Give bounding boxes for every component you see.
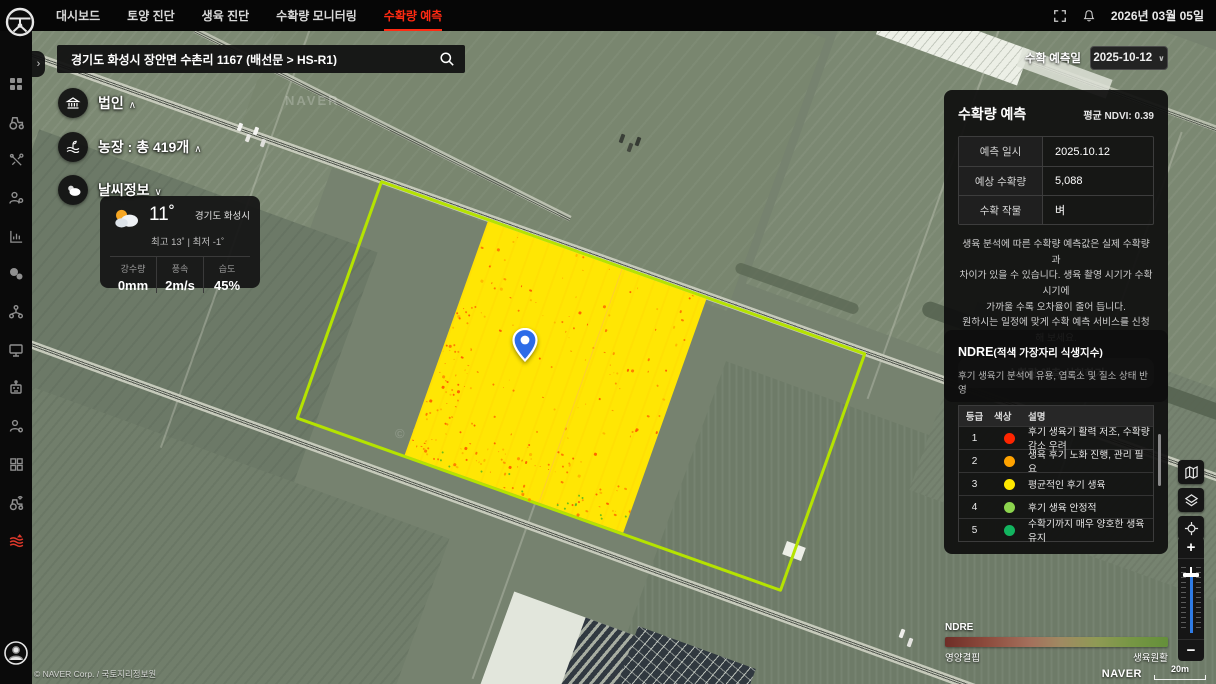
chevron-down-icon: ∨ <box>1158 54 1165 63</box>
panel-collapse-handle[interactable]: › <box>32 51 45 77</box>
ndvi-speckle <box>429 412 431 414</box>
sun-cloud-icon <box>110 205 142 236</box>
gradient-bar <box>945 637 1168 647</box>
ndvi-speckle <box>553 321 556 324</box>
zoom-out-button[interactable]: − <box>1178 639 1204 661</box>
ndvi-speckle <box>416 445 418 447</box>
sidebar-analytics-icon[interactable] <box>0 217 32 255</box>
ndvi-speckle <box>460 356 463 359</box>
ndvi-speckle <box>599 488 602 491</box>
ndvi-speckle <box>511 434 512 435</box>
ndvi-speckle <box>432 457 435 460</box>
ndvi-speckle <box>502 449 504 451</box>
ndvi-speckle <box>570 350 572 352</box>
sidebar-organization-icon[interactable] <box>0 293 32 331</box>
ndvi-speckle <box>525 461 528 464</box>
ndvi-speckle <box>475 460 477 462</box>
ndre-grade-row: 2 생육 후기 노화 진행, 관리 필요 <box>959 449 1153 472</box>
ndvi-speckle <box>612 509 615 512</box>
caret-down-icon: ∨ <box>155 187 162 198</box>
sidebar-apps-icon[interactable] <box>0 445 32 483</box>
grade-color-dot <box>1004 479 1015 490</box>
ndvi-speckle <box>431 439 433 441</box>
gradient-title: NDRE <box>945 622 1168 633</box>
ndvi-speckle <box>480 463 482 465</box>
ndvi-speckle <box>574 504 577 507</box>
ndvi-speckle <box>529 453 532 456</box>
naver-logo: NAVER <box>1102 668 1142 680</box>
wind-value: 2m/s <box>157 278 203 293</box>
zoom-slider-track <box>1190 577 1193 633</box>
weather-info-button[interactable]: 날씨정보∨ <box>58 175 162 205</box>
ndvi-speckle <box>629 513 630 514</box>
ndvi-speckle <box>492 383 495 386</box>
ndvi-speckle <box>477 371 479 373</box>
ndvi-speckle <box>453 344 455 346</box>
ndvi-speckle <box>688 297 690 299</box>
ndvi-speckle <box>459 317 461 319</box>
ndvi-speckle <box>637 287 639 289</box>
ndvi-speckle <box>429 399 432 402</box>
ndvi-speckle <box>467 373 469 375</box>
ndvi-speckle <box>602 432 605 435</box>
ndvi-speckle <box>455 374 457 376</box>
ndvi-speckle <box>567 437 569 439</box>
ndvi-speckle <box>510 297 511 298</box>
ndvi-speckle <box>457 390 460 393</box>
ndre-gradient-legend: NDRE 영양결핍 생육원활 <box>945 622 1168 664</box>
ndvi-speckle <box>600 517 603 520</box>
sidebar-dashboard-icon[interactable] <box>0 65 32 103</box>
nav-growth-diagnosis[interactable]: 생육 진단 <box>202 0 250 31</box>
ndvi-speckle <box>453 359 455 361</box>
ndvi-speckle <box>459 431 462 434</box>
ndvi-speckle <box>445 363 447 365</box>
ndvi-speckle <box>455 465 458 468</box>
map-canvas[interactable]: NAVER © NAVER › 법인∧ <box>32 31 1216 684</box>
ndvi-speckle <box>489 265 492 268</box>
ndvi-speckle <box>612 352 615 355</box>
ndvi-speckle <box>542 396 544 398</box>
ndvi-speckle <box>614 513 617 516</box>
ndvi-speckle <box>461 452 463 454</box>
ndvi-speckle <box>616 490 618 492</box>
ndvi-speckle <box>615 382 617 384</box>
ndvi-speckle <box>449 344 453 348</box>
prediction-date-select[interactable]: 2025-10-12 ∨ <box>1090 46 1168 70</box>
map-watermark: NAVER <box>285 93 340 108</box>
ndvi-speckle <box>426 453 428 455</box>
ndvi-speckle <box>494 288 496 290</box>
ndvi-speckle <box>554 471 556 473</box>
nav-yield-monitoring[interactable]: 수확량 모니터링 <box>276 0 357 31</box>
ndvi-speckle <box>475 452 478 455</box>
ndvi-speckle <box>631 431 633 433</box>
ndvi-speckle <box>503 473 506 476</box>
caret-up-icon: ∧ <box>129 100 136 111</box>
ndvi-speckle <box>502 387 503 388</box>
ndvi-speckle <box>487 448 489 450</box>
ndvi-speckle <box>451 416 453 418</box>
grade-color-dot <box>1004 433 1015 444</box>
main-nav: 대시보드 토양 진단 생육 진단 수확량 모니터링 수확량 예측 <box>56 0 442 31</box>
ndvi-speckle <box>464 446 467 449</box>
ndvi-speckle <box>449 349 451 351</box>
ndre-scrollbar[interactable] <box>1158 434 1161 486</box>
ndvi-speckle <box>635 428 638 431</box>
ndvi-speckle <box>426 401 428 403</box>
zoom-slider[interactable] <box>1178 559 1204 639</box>
humidity-label: 습도 <box>204 262 250 275</box>
ndvi-speckle <box>585 403 586 404</box>
ndvi-speckle <box>512 486 515 489</box>
ndvi-speckle <box>508 473 511 476</box>
current-temperature: 11˚ <box>149 205 175 225</box>
ndvi-speckle <box>465 311 467 313</box>
ndvi-speckle <box>442 375 445 378</box>
ndvi-speckle <box>582 256 585 259</box>
ndvi-speckle <box>576 513 579 516</box>
ndvi-speckle <box>550 366 553 369</box>
ndvi-speckle <box>683 339 686 342</box>
scale-line <box>1154 675 1206 680</box>
ndvi-speckle <box>665 370 667 372</box>
ndre-grade-row: 4 후기 생육 안정적 <box>959 495 1153 518</box>
ndvi-speckle <box>662 398 665 401</box>
ndvi-speckle <box>647 358 650 361</box>
ndvi-speckle <box>502 461 506 465</box>
layers-button[interactable] <box>1178 488 1204 512</box>
ndvi-speckle <box>553 409 555 411</box>
ndvi-speckle <box>567 502 570 505</box>
ndvi-speckle <box>530 299 532 301</box>
ndvi-speckle <box>560 480 564 484</box>
ndvi-speckle <box>481 312 483 314</box>
table-row: 수확 작물 벼 <box>959 195 1153 224</box>
ndvi-speckle <box>426 418 428 420</box>
nav-soil-diagnosis[interactable]: 토양 진단 <box>127 0 175 31</box>
ndvi-speckle <box>451 389 453 391</box>
ndvi-speckle <box>440 459 443 462</box>
wind-label: 풍속 <box>157 262 203 275</box>
grade-color-dot <box>1004 502 1015 513</box>
ndvi-speckle <box>448 465 451 468</box>
ndvi-speckle <box>436 409 439 412</box>
ndvi-speckle <box>441 451 444 454</box>
ndvi-speckle <box>566 471 569 474</box>
map-attribution: © NAVER Corp. / 국토지리정보원 <box>34 668 156 680</box>
ndvi-speckle <box>681 319 684 322</box>
ndvi-speckle <box>481 246 484 249</box>
ndvi-speckle <box>613 372 615 374</box>
high-low-temperature: 최고 13˚ | 최저 -1˚ <box>151 234 250 248</box>
ndvi-speckle <box>565 330 567 332</box>
ndvi-speckle <box>608 314 610 316</box>
ndvi-speckle <box>599 492 602 495</box>
ndvi-speckle <box>464 385 466 387</box>
ndvi-speckle <box>599 398 601 400</box>
ndvi-speckle <box>480 470 483 473</box>
ndvi-speckle <box>573 327 576 330</box>
top-bar: 대시보드 토양 진단 생육 진단 수확량 모니터링 수확량 예측 2026년 0… <box>0 0 1216 31</box>
ndvi-speckle <box>457 399 460 402</box>
ndvi-speckle <box>535 302 537 304</box>
map-scale: 20m <box>1154 664 1206 680</box>
search-input[interactable] <box>71 52 439 66</box>
ndvi-speckle <box>616 373 618 375</box>
search-icon[interactable] <box>439 51 455 67</box>
sidebar-tools-icon[interactable] <box>0 141 32 179</box>
ndvi-speckle <box>441 386 445 390</box>
ndvi-speckle <box>466 322 469 325</box>
ndre-subtitle: 후기 생육기 분석에 유용, 엽록소 및 질소 상태 반영 <box>958 368 1154 396</box>
ndvi-speckle <box>624 487 627 490</box>
caret-up-icon: ∧ <box>194 144 201 155</box>
ndvi-speckle <box>529 289 532 292</box>
ndvi-speckle <box>500 288 503 291</box>
ndvi-speckle <box>629 435 631 437</box>
ndvi-speckle <box>615 510 616 511</box>
ndvi-speckle <box>521 459 523 461</box>
ndre-grade-row: 3 평균적인 후기 생육 <box>959 472 1153 495</box>
ndvi-speckle <box>577 474 580 477</box>
ndvi-speckle <box>452 393 455 396</box>
roadview-button[interactable] <box>1178 460 1204 484</box>
ndvi-speckle <box>498 451 499 452</box>
ndvi-speckle <box>423 443 425 445</box>
ndvi-speckle <box>521 285 523 287</box>
ndvi-speckle <box>480 280 483 283</box>
ndvi-speckle <box>483 459 486 462</box>
ndvi-speckle <box>517 237 518 238</box>
ndvi-speckle <box>539 357 541 359</box>
ndvi-speckle <box>425 413 428 416</box>
gradient-left-label: 영양결핍 <box>945 650 980 664</box>
ndvi-speckle <box>530 458 532 460</box>
ndvi-speckle <box>557 504 560 507</box>
zoom-control: + − <box>1178 537 1204 661</box>
ndvi-speckle <box>610 364 611 365</box>
grade-color-dot <box>1004 456 1015 467</box>
ndvi-speckle <box>457 384 460 387</box>
ndvi-speckle <box>442 350 444 352</box>
ndvi-speckle <box>568 464 571 467</box>
ndvi-speckle <box>675 344 678 347</box>
ndvi-speckle <box>512 390 514 392</box>
sidebar-equipment-icon[interactable] <box>0 369 32 407</box>
ndvi-speckle <box>527 446 529 448</box>
ndvi-speckle <box>445 433 447 435</box>
ndvi-speckle <box>540 465 542 467</box>
ndvi-speckle <box>427 447 430 450</box>
ndvi-speckle <box>655 431 658 434</box>
ndvi-speckle <box>489 471 491 473</box>
ndvi-speckle <box>522 485 525 488</box>
app-logo-icon[interactable] <box>4 6 36 38</box>
ndvi-speckle <box>484 316 486 318</box>
ndvi-speckle <box>606 502 609 505</box>
ndvi-speckle <box>449 416 451 418</box>
ndvi-speckle <box>512 240 514 242</box>
ndre-legend-panel: NDRE(적색 가장자리 식생지수) 후기 생육기 분석에 유용, 엽록소 및 … <box>944 330 1168 554</box>
ndvi-speckle <box>460 448 462 450</box>
ndvi-speckle <box>692 294 694 296</box>
ndvi-speckle <box>517 309 520 312</box>
ndvi-speckle <box>572 457 575 460</box>
ndvi-speckle <box>468 365 470 367</box>
ndvi-speckle <box>412 439 414 441</box>
ndvi-speckle <box>578 495 581 498</box>
location-pin[interactable] <box>512 328 538 367</box>
notifications-bell-icon[interactable] <box>1082 9 1096 23</box>
ndvi-speckle <box>504 259 507 262</box>
ndvi-speckle <box>491 282 493 284</box>
ndvi-speckle <box>577 407 579 409</box>
ndvi-speckle <box>463 308 465 310</box>
app-root: NAVER © NAVER › 법인∧ <box>0 0 1216 684</box>
ndvi-speckle <box>580 461 582 463</box>
precipitation-label: 강수량 <box>110 262 156 275</box>
sidebar-manager-icon[interactable] <box>0 407 32 445</box>
sidebar-smart-tractor-icon[interactable] <box>0 483 32 521</box>
corporation-button[interactable]: 법인∧ <box>58 88 136 118</box>
ndvi-speckle <box>600 514 603 517</box>
ndvi-speckle <box>457 351 460 354</box>
ndvi-speckle <box>575 254 578 257</box>
sprout-icon <box>58 132 88 162</box>
ndvi-speckle <box>445 391 448 394</box>
ndvi-speckle <box>618 485 620 487</box>
current-date: 2026년 03월 05일 <box>1111 7 1204 24</box>
ndvi-speckle <box>672 326 675 329</box>
ndvi-speckle <box>470 306 473 309</box>
ndvi-speckle <box>568 316 570 318</box>
ndvi-speckle <box>466 459 468 461</box>
ndvi-speckle <box>582 269 585 272</box>
nav-dashboard[interactable]: 대시보드 <box>56 0 100 31</box>
ndvi-speckle <box>561 453 564 456</box>
ndvi-speckle <box>505 453 506 454</box>
ndvi-speckle <box>585 510 588 513</box>
ndvi-speckle <box>439 371 441 373</box>
farm-list-button[interactable]: 농장 : 총 419개∧ <box>58 132 202 162</box>
ndvi-speckle <box>562 277 564 279</box>
search-bar <box>57 45 465 73</box>
ndvi-speckle <box>446 403 448 405</box>
ndre-grade-row: 5 수확기까지 매우 양호한 생육 유지 <box>959 518 1153 541</box>
sidebar <box>0 31 32 684</box>
ndvi-speckle <box>629 509 632 512</box>
ndre-title: NDRE <box>958 345 993 359</box>
ndvi-speckle <box>604 352 605 353</box>
ndvi-speckle <box>473 424 476 427</box>
ndvi-speckle <box>455 406 457 408</box>
ndre-title-sub: (적색 가장자리 식생지수) <box>993 347 1102 359</box>
ndvi-speckle <box>469 443 471 445</box>
ndvi-speckle <box>656 308 658 310</box>
ndvi-speckle <box>535 431 538 434</box>
weather-card: 11˚ 경기도 화성시 최고 13˚ | 최저 -1˚ 강수량 0mm 풍속 2… <box>100 196 260 288</box>
ndvi-speckle <box>627 369 630 372</box>
humidity-value: 45% <box>204 278 250 293</box>
ndvi-speckle <box>493 442 496 445</box>
prediction-table: 예측 일시 2025.10.12 예상 수확량 5,088 수확 작물 벼 <box>958 136 1154 225</box>
ndvi-speckle <box>470 387 472 389</box>
bank-icon <box>58 88 88 118</box>
ndvi-speckle <box>587 324 589 326</box>
panel-title: 수확량 예측 <box>958 104 1026 124</box>
zoom-in-button[interactable]: + <box>1178 537 1204 559</box>
sidebar-crop-prediction-icon[interactable] <box>0 521 32 559</box>
account-icon[interactable] <box>0 634 32 672</box>
sidebar-advisor-icon[interactable] <box>0 179 32 217</box>
table-row: 예상 수확량 5,088 <box>959 166 1153 195</box>
ndvi-speckle <box>542 315 544 317</box>
ndvi-speckle <box>499 330 502 333</box>
ndvi-speckle <box>679 310 682 313</box>
precipitation-value: 0mm <box>110 278 156 293</box>
ndvi-speckle <box>582 496 585 499</box>
ndvi-speckle <box>534 465 536 467</box>
fullscreen-icon[interactable] <box>1053 9 1067 23</box>
ndvi-speckle <box>598 506 600 508</box>
ndvi-speckle <box>446 423 448 425</box>
ndvi-speckle <box>497 248 500 251</box>
ndvi-speckle <box>659 415 662 418</box>
ndvi-speckle <box>585 359 587 361</box>
ndvi-speckle <box>561 320 564 323</box>
ndvi-speckle <box>655 329 657 331</box>
ndvi-speckle <box>470 349 472 351</box>
ndvi-speckle <box>647 415 650 418</box>
grade-color-dot <box>1004 525 1015 536</box>
ndvi-speckle <box>528 498 531 501</box>
ndvi-speckle <box>517 466 519 468</box>
ndvi-speckle <box>508 379 510 381</box>
sidebar-tractor-icon[interactable] <box>0 103 32 141</box>
ndvi-speckle <box>494 416 496 418</box>
table-header-row: 등급 색상 설명 <box>959 406 1153 426</box>
ndvi-speckle <box>656 384 659 387</box>
ndvi-speckle <box>619 388 621 390</box>
ndvi-speckle <box>647 371 649 373</box>
ndvi-speckle <box>464 369 466 371</box>
ndvi-speckle <box>512 324 514 326</box>
ndvi-speckle <box>561 465 564 468</box>
ndre-grade-row: 1 후기 생육기 활력 저조, 수확량 감소 우려 <box>959 426 1153 449</box>
nav-yield-prediction[interactable]: 수확량 예측 <box>384 0 443 31</box>
ndvi-speckle <box>625 515 628 518</box>
ndvi-speckle <box>509 466 512 469</box>
ndvi-speckle <box>603 305 607 309</box>
ndvi-speckle <box>581 499 584 502</box>
ndvi-speckle <box>439 408 442 411</box>
ndvi-speckle <box>596 494 599 497</box>
ndre-grade-table: 등급 색상 설명 1 후기 생육기 활력 저조, 수확량 감소 우려 2 생육 … <box>958 405 1154 542</box>
zoom-slider-handle[interactable] <box>1183 573 1199 577</box>
ndvi-speckle <box>504 487 506 489</box>
average-ndvi-value: 평균 NDVI: 0.39 <box>1083 107 1154 122</box>
ndvi-speckle <box>425 440 427 442</box>
ndvi-speckle <box>578 501 580 503</box>
ndvi-speckle <box>435 439 437 441</box>
cloud-weather-icon <box>58 175 88 205</box>
sidebar-monitoring-icon[interactable] <box>0 331 32 369</box>
ndvi-speckle <box>547 463 549 465</box>
sidebar-consulting-icon[interactable] <box>0 255 32 293</box>
ndvi-speckle <box>474 306 477 309</box>
weather-location: 경기도 화성시 <box>195 205 250 222</box>
